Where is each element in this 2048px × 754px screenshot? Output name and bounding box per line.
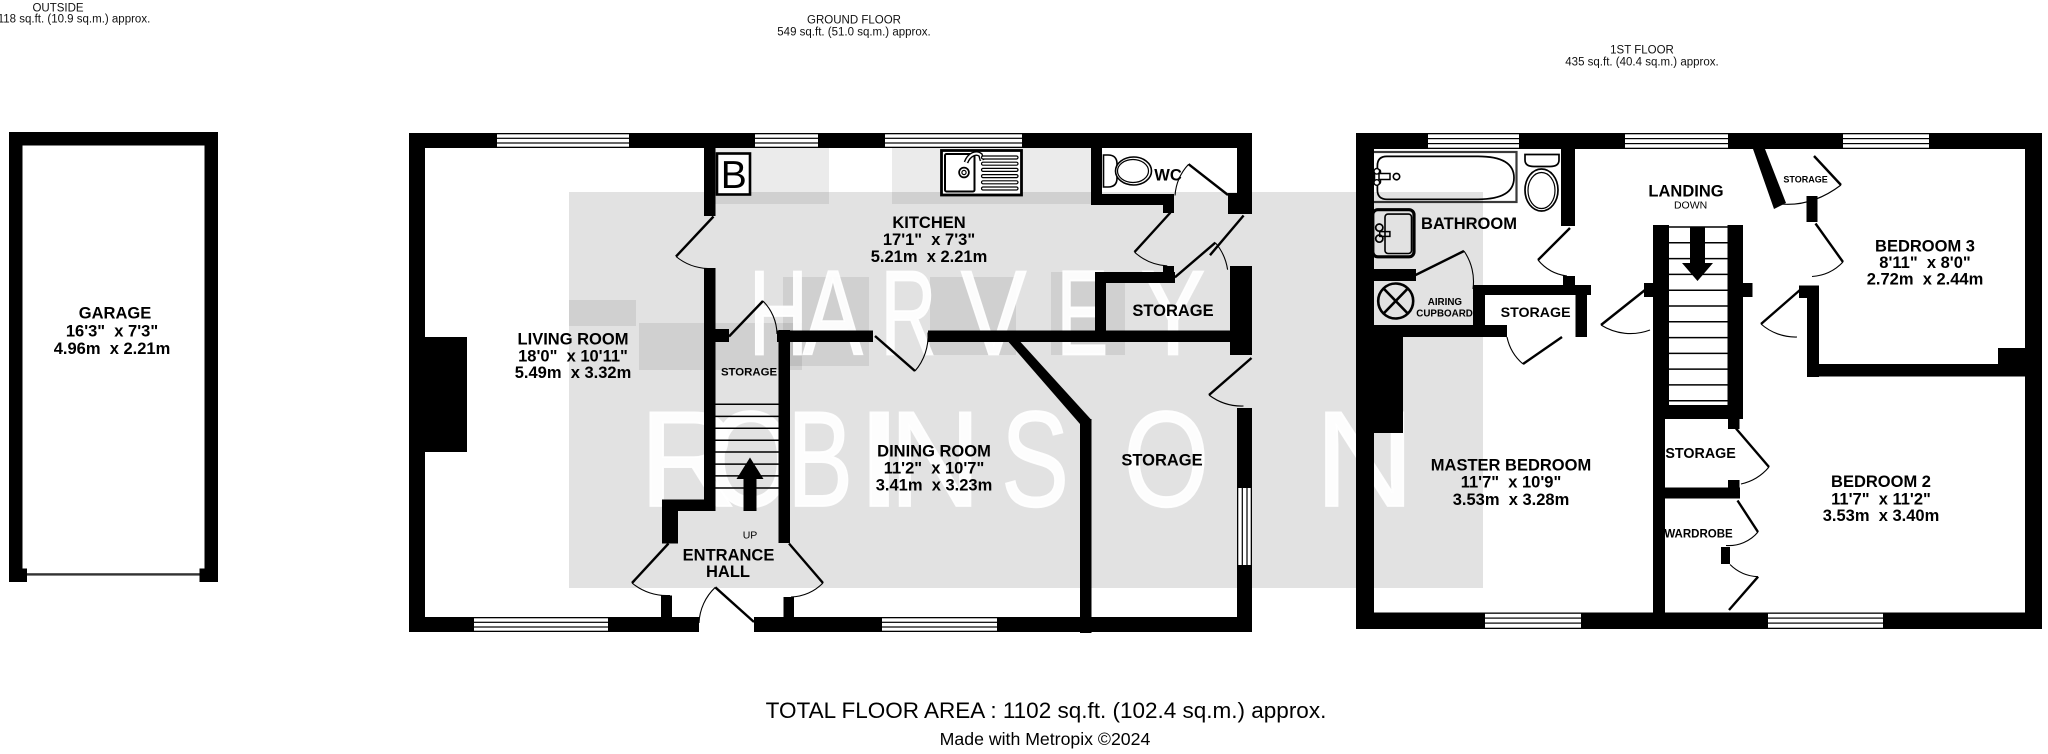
svg-text:LIVING ROOM: LIVING ROOM	[518, 331, 629, 349]
svg-text:STORAGE: STORAGE	[1783, 175, 1827, 185]
svg-text:H: H	[749, 246, 808, 381]
svg-text:BEDROOM 2: BEDROOM 2	[1831, 473, 1931, 491]
svg-text:DOWN: DOWN	[1674, 200, 1707, 212]
svg-text:CUPBOARD: CUPBOARD	[1416, 308, 1473, 319]
svg-text:HALL: HALL	[706, 563, 750, 581]
svg-text:8'11" x 8'0": 8'11" x 8'0"	[1879, 254, 1970, 272]
svg-text:MASTER BEDROOM: MASTER BEDROOM	[1431, 456, 1591, 474]
svg-text:LANDING: LANDING	[1648, 182, 1723, 200]
svg-text:V: V	[961, 247, 1026, 381]
svg-text:2.72m x 2.44m: 2.72m x 2.44m	[1867, 271, 1984, 289]
svg-text:STORAGE: STORAGE	[1132, 302, 1213, 320]
svg-text:TOTAL FLOOR AREA : 1102 sq.ft.: TOTAL FLOOR AREA : 1102 sq.ft. (102.4 sq…	[766, 698, 1327, 723]
svg-text:118 sq.ft. (10.9 sq.m.) approx: 118 sq.ft. (10.9 sq.m.) approx.	[0, 14, 150, 26]
svg-text:B: B	[787, 384, 853, 535]
svg-text:GROUND FLOOR: GROUND FLOOR	[807, 15, 901, 27]
svg-text:BATHROOM: BATHROOM	[1421, 215, 1517, 233]
svg-text:549 sq.ft. (51.0 sq.m.) approx: 549 sq.ft. (51.0 sq.m.) approx.	[777, 27, 930, 39]
svg-text:S: S	[1001, 384, 1069, 536]
svg-text:1ST FLOOR: 1ST FLOOR	[1610, 45, 1674, 57]
svg-text:5.21m x 2.21m: 5.21m x 2.21m	[871, 248, 988, 266]
svg-text:WC: WC	[1154, 167, 1182, 185]
svg-text:18'0" x 10'11": 18'0" x 10'11"	[518, 347, 628, 365]
svg-text:Made with Metropix ©2024: Made with Metropix ©2024	[940, 729, 1151, 749]
svg-text:B: B	[721, 154, 747, 197]
svg-text:GARAGE: GARAGE	[79, 304, 151, 322]
svg-text:11'7" x 10'9": 11'7" x 10'9"	[1461, 474, 1562, 492]
svg-text:3.41m x 3.23m: 3.41m x 3.23m	[876, 477, 993, 495]
svg-text:A: A	[803, 247, 863, 381]
svg-text:11'2" x 10'7": 11'2" x 10'7"	[884, 460, 985, 478]
svg-text:KITCHEN: KITCHEN	[892, 214, 965, 232]
svg-text:STORAGE: STORAGE	[721, 367, 778, 379]
svg-text:DINING ROOM: DINING ROOM	[877, 443, 991, 461]
svg-text:16'3" x 7'3": 16'3" x 7'3"	[66, 323, 158, 341]
svg-text:3.53m x 3.28m: 3.53m x 3.28m	[1453, 491, 1570, 509]
svg-text:STORAGE: STORAGE	[1501, 305, 1571, 321]
svg-text:5.49m x 3.32m: 5.49m x 3.32m	[515, 364, 632, 382]
svg-text:UP: UP	[743, 530, 758, 542]
svg-text:4.96m x 2.21m: 4.96m x 2.21m	[54, 340, 171, 358]
svg-text:435 sq.ft. (40.4 sq.m.) approx: 435 sq.ft. (40.4 sq.m.) approx.	[1565, 57, 1718, 69]
svg-text:STORAGE: STORAGE	[1121, 452, 1202, 470]
svg-text:17'1" x 7'3": 17'1" x 7'3"	[883, 231, 975, 249]
svg-text:STORAGE: STORAGE	[1665, 446, 1735, 462]
svg-text:BEDROOM 3: BEDROOM 3	[1875, 238, 1975, 256]
svg-text:11'7" x 11'2": 11'7" x 11'2"	[1831, 490, 1931, 508]
svg-text:ENTRANCE: ENTRANCE	[683, 547, 775, 565]
svg-text:WARDROBE: WARDROBE	[1664, 529, 1733, 541]
svg-text:R: R	[881, 246, 937, 381]
svg-text:3.53m x 3.40m: 3.53m x 3.40m	[1823, 507, 1940, 525]
svg-text:AIRING: AIRING	[1428, 297, 1463, 308]
